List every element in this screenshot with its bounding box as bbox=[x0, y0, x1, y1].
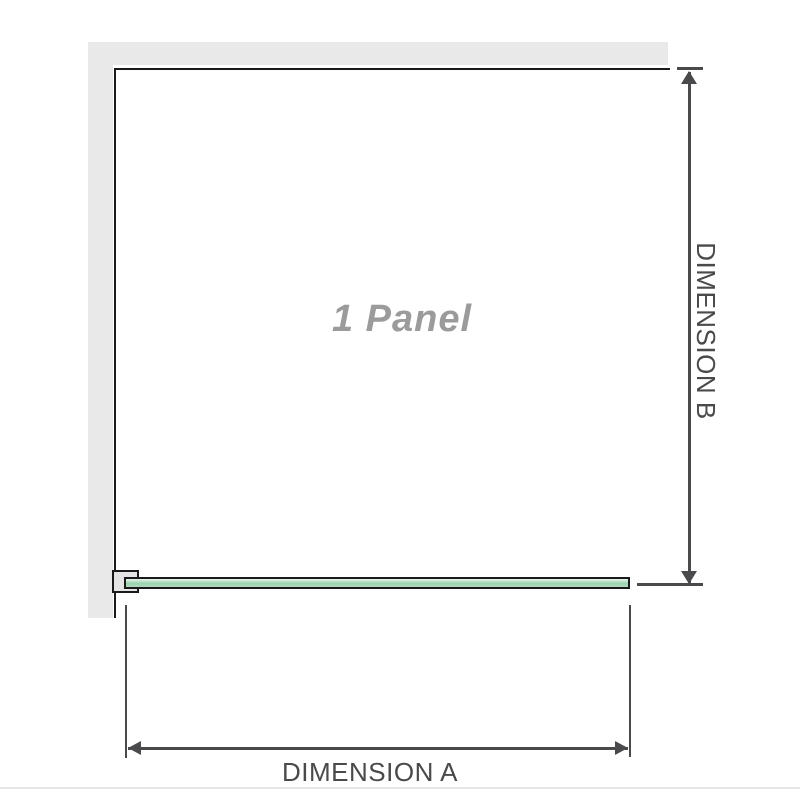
extension-line-left bbox=[125, 605, 127, 758]
wall-band-left bbox=[88, 42, 113, 618]
dimension-b-arrow-up-icon bbox=[681, 71, 697, 84]
panel-outline-top bbox=[114, 68, 670, 70]
dimension-b-label: DIMENSION B bbox=[692, 231, 720, 431]
dimension-a-label: DIMENSION A bbox=[250, 757, 490, 788]
dimension-a-arrow-right-icon bbox=[615, 741, 628, 755]
glass-panel-bar bbox=[124, 577, 630, 589]
dimension-a-line bbox=[128, 747, 628, 750]
dimension-b-tick-top bbox=[677, 67, 703, 70]
bottom-separator bbox=[0, 787, 800, 789]
shower-panel-dimension-diagram: 1 Panel DIMENSION B DIMENSION A bbox=[0, 0, 800, 800]
dimension-b-arrow-down-icon bbox=[681, 571, 697, 584]
panel-outline-left bbox=[114, 68, 116, 618]
dimension-a-arrow-left-icon bbox=[128, 741, 141, 755]
extension-line-right bbox=[629, 605, 631, 757]
wall-band-top bbox=[88, 42, 668, 65]
panel-count-label: 1 Panel bbox=[252, 298, 552, 341]
